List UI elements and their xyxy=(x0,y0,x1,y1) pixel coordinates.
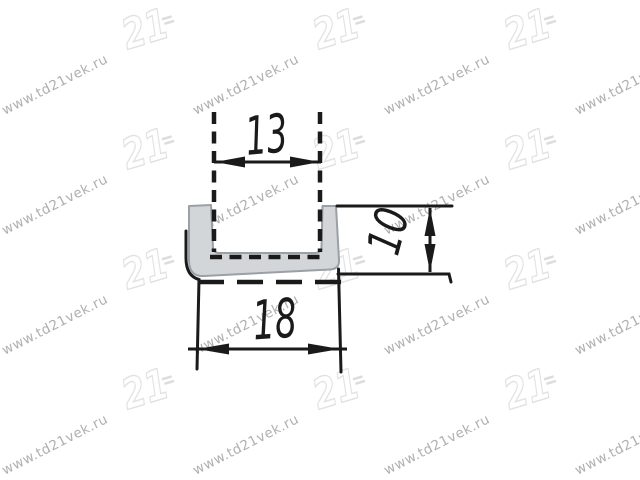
dim-10-extension-bottom xyxy=(338,274,451,282)
diagram-canvas: 21212121212121212121212121212121www.td21… xyxy=(0,0,640,480)
dim-13-arrow-left xyxy=(215,157,245,168)
u-profile-body xyxy=(189,205,339,276)
dim-18-extension-right xyxy=(339,269,342,372)
dim-10-label: 10 xyxy=(356,202,420,260)
dim-18-arrow-right xyxy=(308,344,340,355)
dim-10-arrow-up xyxy=(425,208,436,236)
dimension-inner-width: 13 xyxy=(214,103,321,167)
dim-18-label: 18 xyxy=(251,287,299,353)
dimension-height: 10 xyxy=(337,202,452,282)
u-profile-drawing: 13 18 10 xyxy=(0,0,640,480)
dim-13-label: 13 xyxy=(243,103,290,167)
dim-10-arrow-down xyxy=(425,244,436,272)
u-profile-shape xyxy=(189,205,339,276)
dim-18-arrow-left xyxy=(197,344,229,355)
dim-13-arrow-right xyxy=(290,157,320,168)
